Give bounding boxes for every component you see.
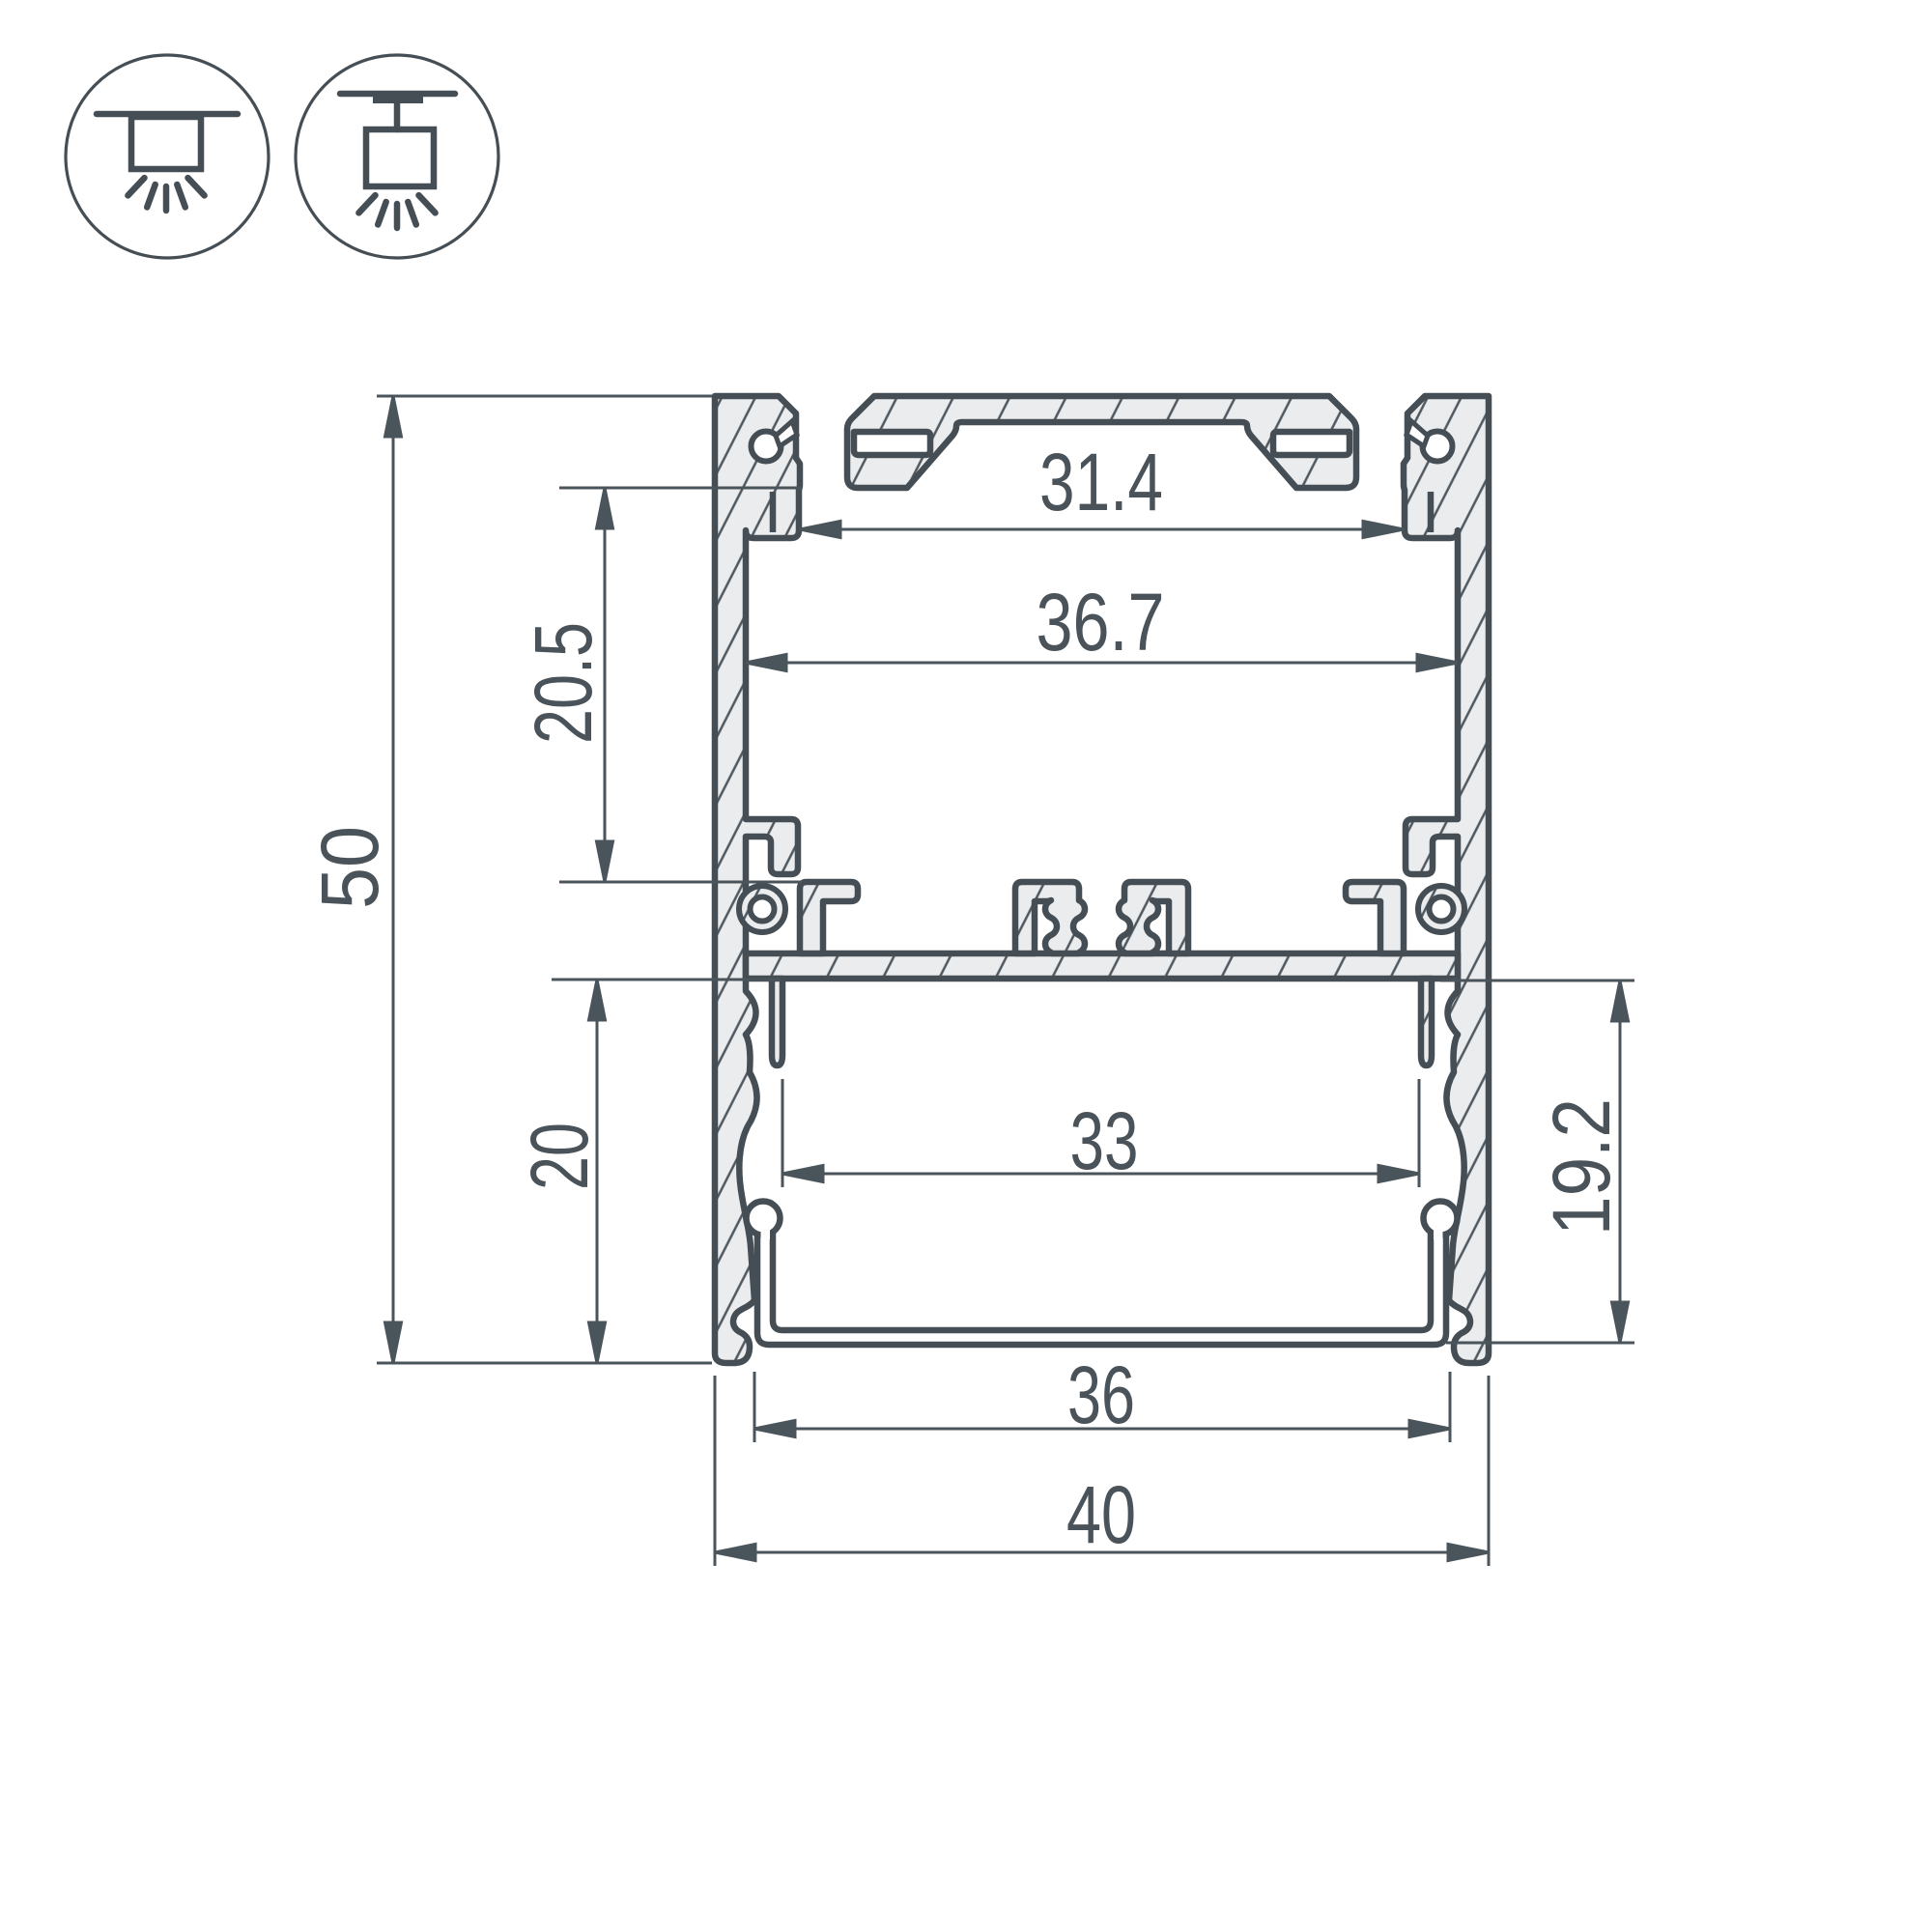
svg-text:36.7: 36.7: [1037, 577, 1165, 668]
svg-text:31.4: 31.4: [1039, 437, 1163, 527]
svg-text:19.2: 19.2: [1536, 1098, 1627, 1236]
svg-text:50: 50: [304, 826, 395, 909]
svg-text:33: 33: [1070, 1095, 1139, 1186]
svg-text:36: 36: [1067, 1350, 1135, 1440]
svg-text:20: 20: [514, 1122, 605, 1190]
svg-text:20.5: 20.5: [518, 622, 609, 744]
svg-text:40: 40: [1066, 1469, 1136, 1560]
